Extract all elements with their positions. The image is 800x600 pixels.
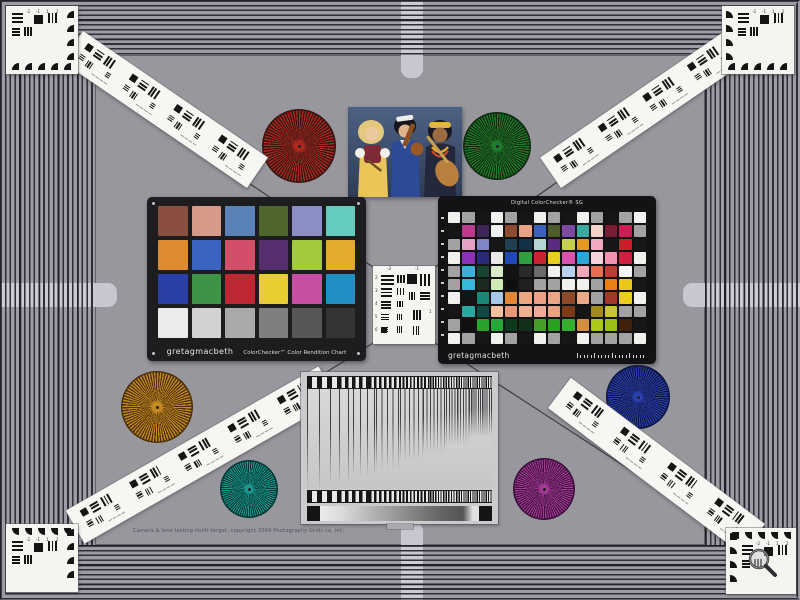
- sg-patch: [448, 292, 460, 303]
- star-center-dot: [156, 406, 159, 409]
- module-micro-text: [180, 133, 184, 136]
- sg-patch: [577, 239, 589, 250]
- magnifier-cursor-icon[interactable]: [746, 546, 780, 580]
- wedge-marker: [38, 528, 45, 535]
- resolution-bar: [781, 13, 783, 23]
- resolution-bar: [397, 275, 399, 283]
- module-black-square: [79, 507, 89, 517]
- sg-patch: [562, 319, 574, 330]
- module-micro-text: [625, 457, 629, 460]
- module-black-square: [597, 122, 607, 132]
- module-black-square: [129, 479, 139, 489]
- sg-patch: [605, 333, 617, 344]
- resolution-bar: [413, 310, 415, 320]
- wedge-marker: [12, 63, 19, 70]
- sg-patch: [448, 333, 460, 344]
- resolution-bar: [428, 274, 430, 286]
- wedge-marker: [754, 63, 761, 70]
- sg-patch: [477, 292, 489, 303]
- sg-patch: [491, 333, 503, 344]
- bar-frequency-segment: [307, 491, 338, 502]
- wedge-marker: [64, 63, 71, 70]
- resolution-bar: [411, 292, 412, 300]
- resolution-bar: [420, 274, 422, 286]
- module-micro-text: [269, 427, 273, 430]
- color-patch: [225, 274, 255, 304]
- sg-patch: [448, 225, 460, 236]
- resolution-bar: [774, 13, 776, 23]
- ruler-module: [116, 69, 169, 119]
- sg-patch: [577, 252, 589, 263]
- module-micro-text: [100, 78, 104, 81]
- step-strip-black-left: [307, 506, 320, 521]
- colorchecker-grid: [158, 206, 355, 338]
- corner-target-top-right: -2-112: [722, 6, 794, 74]
- bar-frequency-segment: [369, 377, 400, 388]
- sg-patch: [505, 266, 517, 277]
- sg-scale-tick: [594, 353, 595, 358]
- sg-patch: [562, 239, 574, 250]
- sg-patch: [491, 279, 503, 290]
- resolution-bar: [399, 301, 400, 307]
- module-micro-text: [595, 153, 599, 156]
- sg-patch: [505, 292, 517, 303]
- sg-patch: [505, 239, 517, 250]
- sg-patch: [634, 225, 646, 236]
- wedge-marker: [25, 528, 32, 535]
- sg-patch: [605, 239, 617, 250]
- star-center-dot: [298, 145, 301, 148]
- sg-patch: [505, 319, 517, 330]
- module-black-square: [553, 152, 563, 162]
- portrait-test-photo: [348, 107, 462, 197]
- wedge-marker: [741, 63, 748, 70]
- resolution-bar: [738, 17, 749, 19]
- sg-scale-tick: [587, 355, 588, 358]
- sg-patch: [591, 319, 603, 330]
- module-micro-text: [206, 463, 210, 466]
- sg-patch: [505, 279, 517, 290]
- sg-patch: [577, 212, 589, 223]
- resolution-bar: [381, 332, 387, 333]
- wedge-marker: [67, 39, 74, 46]
- resolution-bar: [785, 545, 787, 555]
- sg-patch: [477, 239, 489, 250]
- resolution-bar: [738, 31, 746, 33]
- sg-patch: [491, 239, 503, 250]
- bar-frequency-segment: [399, 377, 430, 388]
- ruler-module: [205, 130, 258, 180]
- corner-number: -2: [26, 10, 30, 14]
- sg-patch: [634, 252, 646, 263]
- wedge-marker: [771, 532, 778, 539]
- corner-number: 1: [46, 538, 49, 542]
- sg-patch: [534, 266, 546, 277]
- resolution-bar: [400, 275, 402, 283]
- sg-patch: [519, 292, 531, 303]
- sg-row-tick: [441, 230, 444, 232]
- resolution-bar: [738, 34, 746, 36]
- sg-scale-tick: [629, 353, 630, 358]
- sg-patch: [519, 333, 531, 344]
- sg-patch: [462, 306, 474, 317]
- color-patch: [225, 206, 255, 236]
- sg-patch: [534, 212, 546, 223]
- module-micro-text: [256, 435, 260, 438]
- resolution-bar: [381, 295, 392, 297]
- resolution-bar: [381, 330, 387, 331]
- resolution-bar: [381, 304, 391, 306]
- wedge-marker: [726, 25, 733, 32]
- resolution-bar: [416, 326, 417, 335]
- frequency-sweep-chart: [301, 372, 498, 524]
- wedge-marker: [51, 528, 58, 535]
- resolution-bar: [753, 27, 755, 36]
- sg-patch: [605, 306, 617, 317]
- wedge-marker: [51, 63, 58, 70]
- corner-number: 1: [772, 10, 775, 14]
- module-black-square: [218, 134, 228, 144]
- resolution-bar: [381, 279, 394, 281]
- star-teal: [220, 460, 278, 518]
- bar-frequency-segment: [307, 377, 338, 388]
- sg-scale-tick: [580, 355, 581, 358]
- sg-patch: [462, 239, 474, 250]
- resolution-bar: [381, 307, 391, 309]
- sg-scale-tick: [640, 355, 641, 358]
- sg-patch: [548, 239, 560, 250]
- color-patch: [292, 274, 322, 304]
- corner-number: -2: [26, 538, 30, 542]
- sg-patch: [548, 333, 560, 344]
- resolution-bar: [402, 301, 403, 307]
- usaf-number: 4: [375, 302, 378, 306]
- sg-patch: [577, 319, 589, 330]
- musicians-illustration: [348, 107, 462, 197]
- resolution-bar: [52, 13, 54, 23]
- color-patch: [192, 206, 222, 236]
- wedge-marker: [730, 575, 737, 582]
- sg-patch: [519, 319, 531, 330]
- wedge-marker: [758, 532, 765, 539]
- color-patch: [158, 274, 188, 304]
- sg-patch: [577, 333, 589, 344]
- sg-patch: [548, 319, 560, 330]
- sg-patch: [491, 266, 503, 277]
- sg-patch: [619, 279, 631, 290]
- sg-patch: [448, 319, 460, 330]
- module-micro-text: [148, 111, 152, 114]
- wedge-marker: [730, 547, 737, 554]
- module-black-square: [642, 91, 652, 101]
- resolution-bar: [381, 319, 389, 320]
- resolution-bar: [12, 28, 20, 30]
- sg-patch: [634, 266, 646, 277]
- resolution-bar: [756, 27, 758, 36]
- cross-stub-top: [401, 55, 423, 78]
- ruler-module: [594, 99, 647, 149]
- sg-patch: [505, 306, 517, 317]
- sg-patch: [634, 306, 646, 317]
- module-micro-text: [104, 81, 108, 84]
- sg-patch: [634, 292, 646, 303]
- module-micro-text: [582, 162, 586, 165]
- color-patch: [225, 240, 255, 270]
- resolution-bar: [397, 314, 398, 320]
- sg-patch: [462, 252, 474, 263]
- color-patch: [292, 206, 322, 236]
- resolution-bar: [24, 555, 26, 564]
- sg-patch: [491, 306, 503, 317]
- sg-patch: [505, 225, 517, 236]
- resolution-bar: [399, 314, 400, 320]
- wedge-marker: [38, 63, 45, 70]
- sg-patch: [634, 333, 646, 344]
- color-patch: [259, 308, 289, 338]
- center-usaf-target: -2-1234561: [373, 266, 435, 344]
- resolution-bar: [420, 292, 430, 294]
- color-patch: [326, 240, 356, 270]
- sg-patch: [591, 225, 603, 236]
- resolution-bar: [397, 288, 398, 295]
- color-patch: [326, 206, 356, 236]
- sg-patch: [591, 252, 603, 263]
- sg-patch: [619, 239, 631, 250]
- resolution-bar: [381, 301, 391, 303]
- sg-patch: [634, 319, 646, 330]
- resolution-bar: [750, 27, 752, 36]
- sg-patch: [519, 225, 531, 236]
- star-green: [463, 112, 531, 180]
- color-patch: [158, 206, 188, 236]
- sg-scale-tick: [622, 355, 623, 358]
- colorchecker-sg-card: Digital ColorChecker® SG gretagmacbeth: [438, 196, 656, 364]
- sg-patch: [477, 319, 489, 330]
- sg-patch: [462, 292, 474, 303]
- corner-target-top-left: -2-112: [6, 6, 78, 74]
- sg-patch: [477, 279, 489, 290]
- module-micro-text: [671, 101, 675, 104]
- sg-scale-tick: [584, 355, 585, 358]
- bar-strip-bottom: [307, 490, 492, 503]
- sg-patch: [591, 239, 603, 250]
- sg-patch: [605, 225, 617, 236]
- sg-patch: [548, 279, 560, 290]
- module-black-square: [178, 451, 188, 461]
- module-micro-text: [633, 463, 637, 466]
- sg-scale-tick: [598, 355, 599, 358]
- sg-patch: [519, 239, 531, 250]
- resolution-bar: [12, 559, 20, 561]
- colorchecker-title-text: ColorChecker™ Color Rendition Chart: [243, 350, 346, 356]
- sg-grid: [448, 212, 646, 344]
- sg-scale-tick: [643, 355, 644, 358]
- cross-light-right: [705, 283, 800, 307]
- sg-brand-text: gretagmacbeth: [448, 351, 510, 360]
- module-micro-text: [680, 95, 684, 98]
- sg-patch: [591, 333, 603, 344]
- resolution-bar: [48, 541, 50, 551]
- corner-number: 2: [56, 10, 59, 14]
- sg-patch: [562, 333, 574, 344]
- module-micro-text: [166, 486, 170, 489]
- sweep-line-segment: [400, 389, 423, 489]
- resolution-bar: [24, 27, 26, 36]
- frame-stripes-top: [0, 0, 800, 55]
- module-micro-text: [157, 491, 161, 494]
- resolution-bar: [12, 21, 23, 23]
- sg-scale-tick: [577, 353, 578, 358]
- resolution-bar: [778, 13, 780, 23]
- sg-patch: [534, 239, 546, 250]
- corner-number: -1: [36, 10, 40, 14]
- sg-patch: [505, 252, 517, 263]
- resolution-bar: [418, 326, 419, 335]
- sg-patch: [491, 225, 503, 236]
- resolution-bar: [12, 541, 23, 543]
- module-black-square: [573, 391, 583, 401]
- sg-patch: [462, 279, 474, 290]
- sg-patch: [477, 333, 489, 344]
- module-micro-text: [140, 106, 144, 109]
- sg-patch: [619, 306, 631, 317]
- sg-patch: [505, 212, 517, 223]
- sg-patch: [548, 292, 560, 303]
- color-patch: [292, 240, 322, 270]
- resolution-bar: [30, 27, 32, 36]
- corner-number: -1: [762, 10, 766, 14]
- sg-title-text: Digital ColorChecker® SG: [438, 200, 656, 206]
- sg-patch: [519, 212, 531, 223]
- resolution-bar: [52, 541, 54, 551]
- sg-patch: [477, 306, 489, 317]
- registration-mark: [357, 352, 360, 355]
- cross-stub-right: [683, 283, 705, 307]
- ruler-module: [550, 130, 603, 180]
- module-micro-text: [108, 519, 112, 522]
- resolution-bar: [416, 310, 418, 320]
- module-black-square: [666, 462, 676, 472]
- resolution-bar: [397, 326, 398, 333]
- usaf-number: 6: [375, 328, 378, 332]
- sg-patch: [591, 212, 603, 223]
- registration-mark: [357, 202, 360, 205]
- sweep-line-segment: [353, 389, 376, 489]
- resolution-bar: [738, 13, 749, 15]
- star-orange: [121, 371, 193, 443]
- resolution-bar: [12, 562, 20, 564]
- step-strip-black-right: [479, 506, 492, 521]
- star-center-dot: [248, 488, 251, 491]
- sg-patch: [605, 266, 617, 277]
- module-micro-text: [716, 70, 720, 73]
- sg-patch: [605, 292, 617, 303]
- cross-light-left: [0, 283, 95, 307]
- wedge-marker: [730, 561, 737, 568]
- sweep-line-segment: [376, 389, 399, 489]
- usaf-number: 1: [429, 310, 432, 314]
- sg-row-tick: [441, 256, 444, 258]
- sg-patch: [562, 266, 574, 277]
- bar-strip-top: [307, 376, 492, 389]
- sg-patch: [448, 266, 460, 277]
- module-black-square: [129, 73, 139, 83]
- sg-patch: [562, 306, 574, 317]
- color-patch: [259, 274, 289, 304]
- module-micro-text: [229, 167, 233, 170]
- cross-light-bottom: [401, 545, 423, 600]
- sg-patch: [619, 252, 631, 263]
- sg-patch: [577, 279, 589, 290]
- resolution-bar: [55, 541, 57, 551]
- sg-patch: [519, 266, 531, 277]
- wedge-marker: [67, 11, 74, 18]
- color-patch: [192, 240, 222, 270]
- sg-row-tick: [441, 308, 444, 310]
- resolution-bar: [400, 288, 401, 295]
- bar-frequency-segment: [369, 491, 400, 502]
- corner-number: 2: [786, 542, 789, 546]
- module-micro-text: [676, 495, 680, 498]
- usaf-number: 2: [375, 276, 378, 280]
- wedge-marker: [784, 532, 791, 539]
- sg-patch: [519, 306, 531, 317]
- module-micro-text: [193, 142, 197, 145]
- module-micro-text: [684, 501, 688, 504]
- resolution-bar: [413, 326, 414, 335]
- resolution-bar: [414, 292, 415, 300]
- module-micro-text: [264, 430, 268, 433]
- star-center-dot: [543, 488, 546, 491]
- sg-patch: [577, 306, 589, 317]
- usaf-black-square: [407, 274, 417, 284]
- wedge-marker: [780, 63, 787, 70]
- ruler-module: [559, 388, 612, 438]
- module-micro-text: [215, 458, 219, 461]
- module-black-square: [227, 423, 237, 433]
- registration-mark: [152, 202, 155, 205]
- resolution-bar: [381, 317, 389, 318]
- sg-scale-tick: [601, 355, 602, 358]
- sg-row-tick: [441, 217, 444, 219]
- ruler-bottom-left: [65, 366, 337, 543]
- module-micro-text: [672, 492, 676, 495]
- resolution-bar: [12, 13, 23, 15]
- module-micro-text: [684, 92, 688, 95]
- module-micro-text: [590, 431, 594, 434]
- sg-patch: [591, 292, 603, 303]
- module-micro-text: [586, 428, 590, 431]
- resolution-bar: [419, 310, 421, 320]
- sg-row-tick: [441, 295, 444, 297]
- sg-patch: [534, 319, 546, 330]
- resolution-bar: [55, 13, 57, 23]
- resolution-bar: [381, 288, 392, 290]
- resolution-bar: [409, 292, 410, 300]
- star-center-dot: [496, 145, 499, 148]
- sg-patch: [448, 239, 460, 250]
- sg-patch: [591, 306, 603, 317]
- wedge-marker: [726, 53, 733, 60]
- module-micro-text: [237, 172, 241, 175]
- sg-row-tick: [441, 334, 444, 336]
- usaf-number: -2: [387, 267, 391, 271]
- sg-patch: [491, 292, 503, 303]
- resolution-bar: [48, 13, 50, 23]
- module-micro-text: [582, 425, 586, 428]
- sg-patch: [619, 319, 631, 330]
- color-patch: [259, 206, 289, 236]
